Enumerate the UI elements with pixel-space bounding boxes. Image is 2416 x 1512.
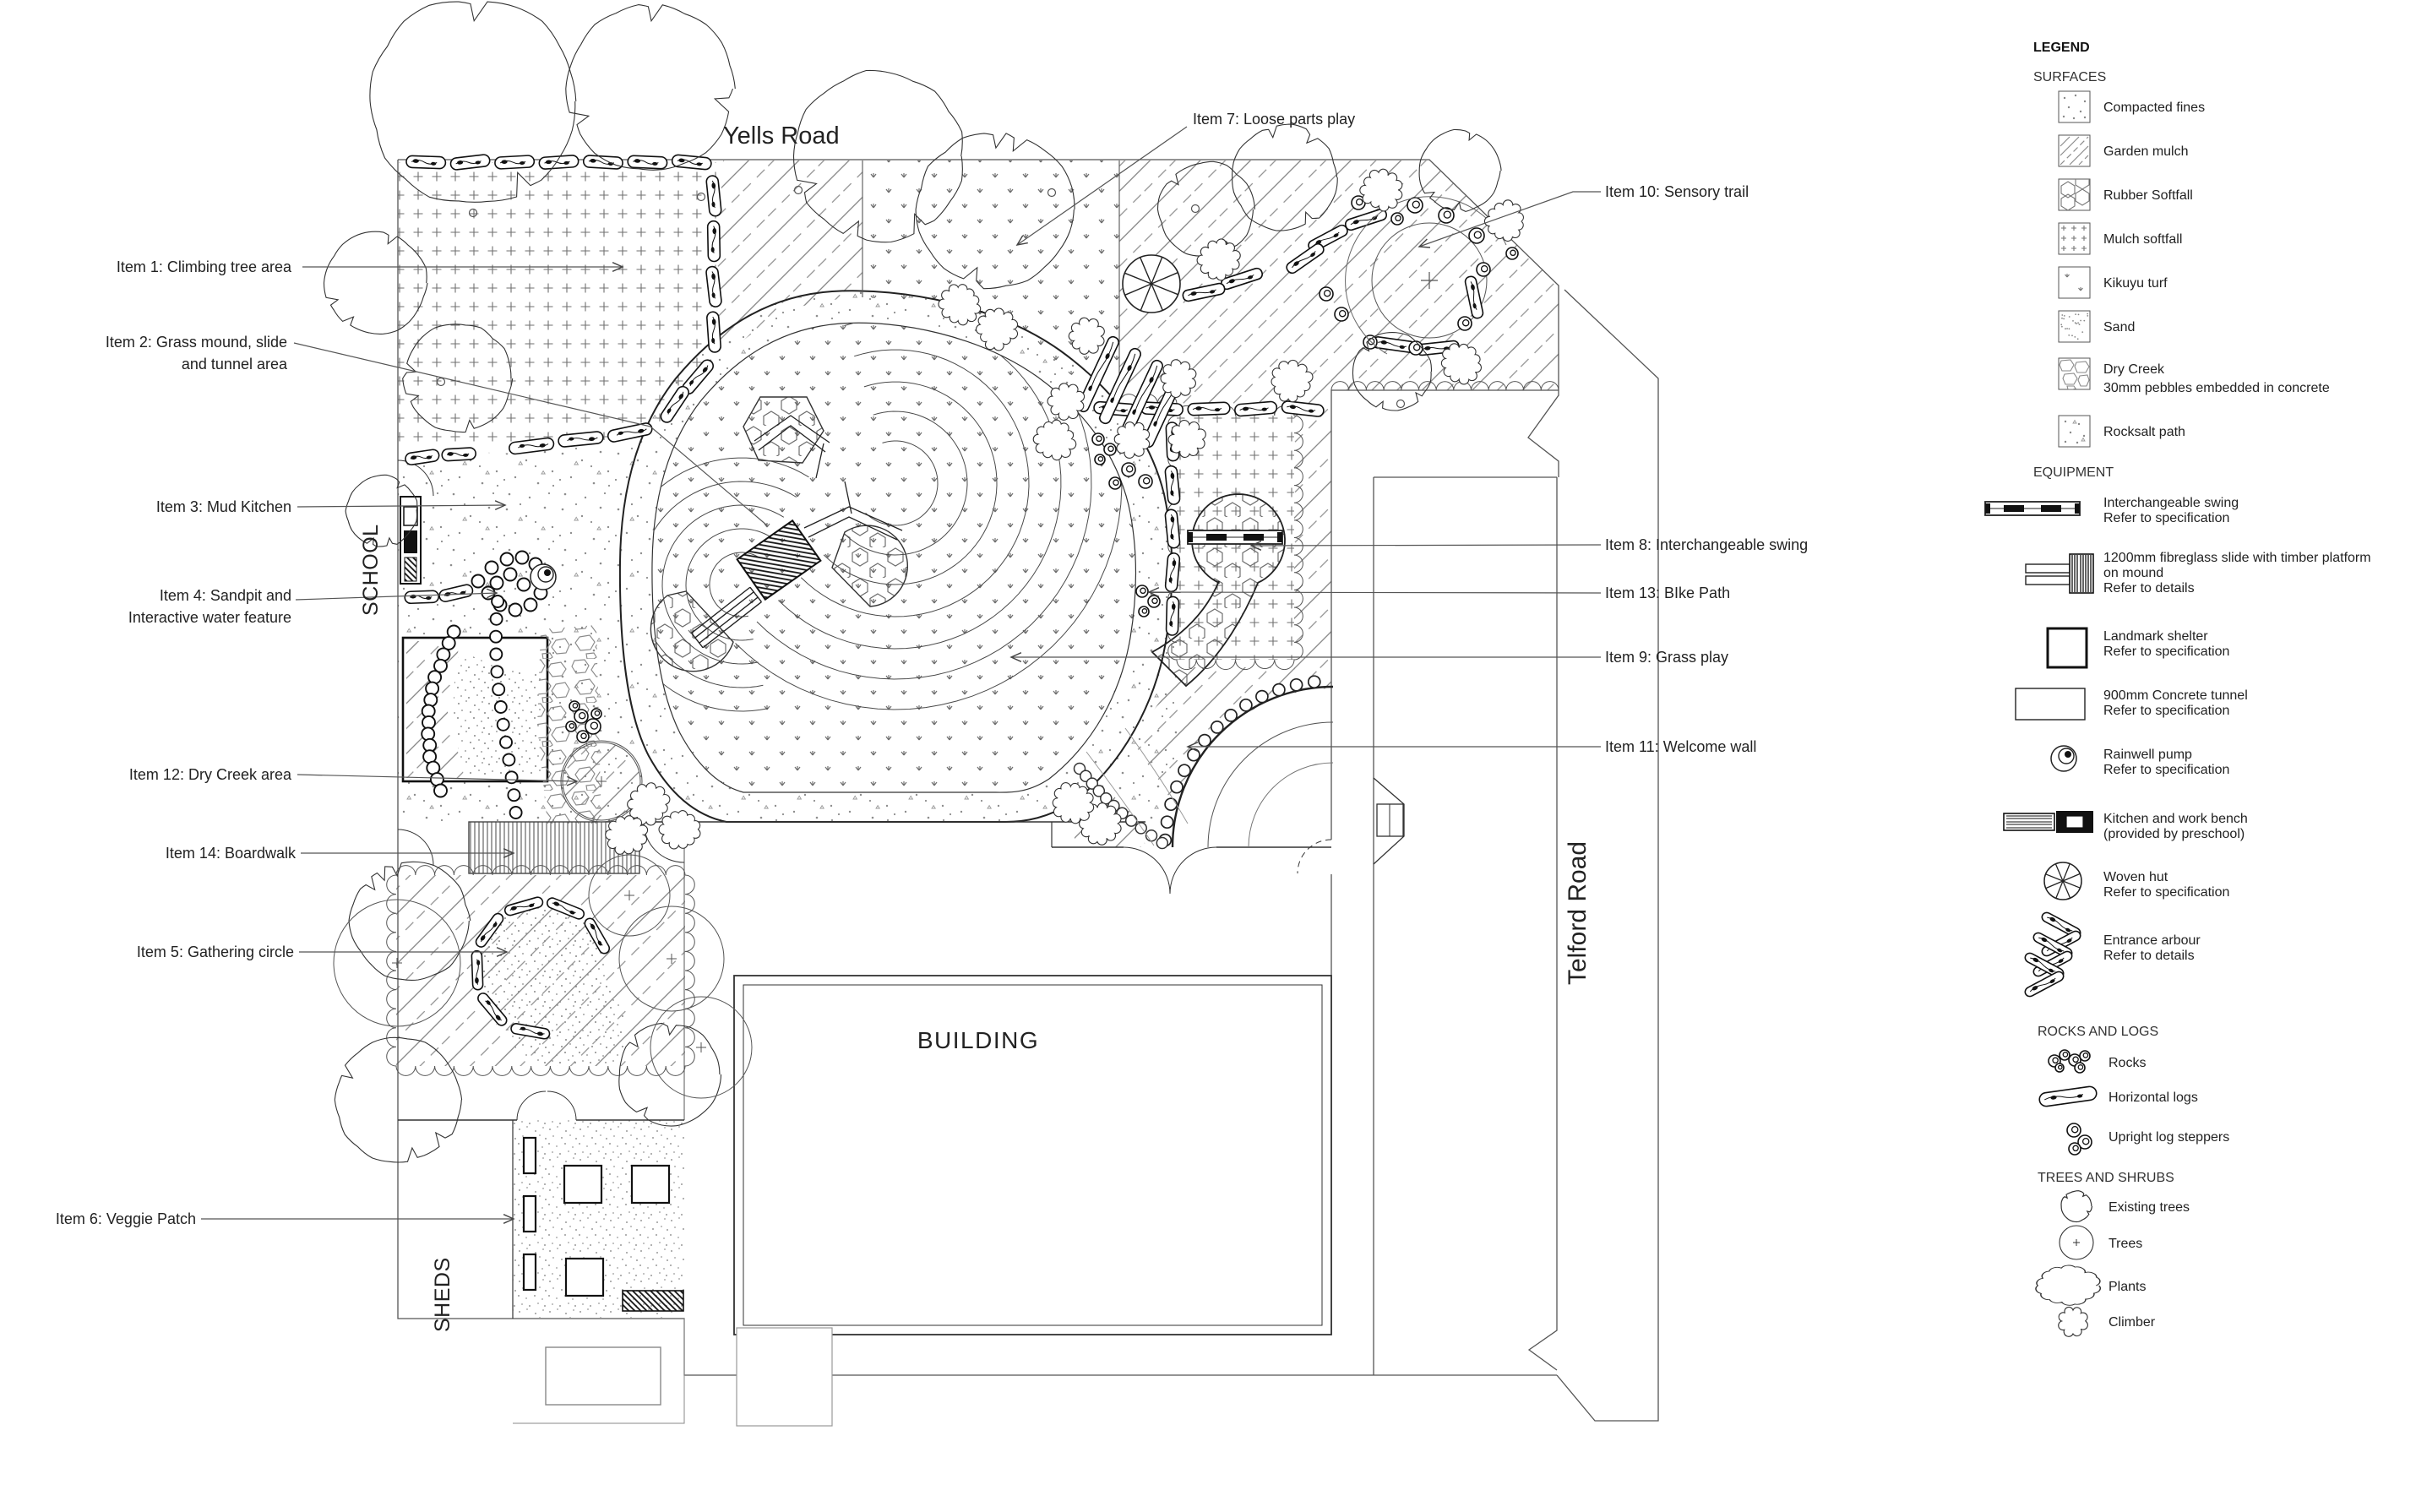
svg-text:Rocks: Rocks: [2109, 1056, 2146, 1070]
svg-text:SHEDS: SHEDS: [431, 1257, 454, 1332]
svg-text:Sand: Sand: [2103, 320, 2135, 334]
svg-text:Item 8: Interchangeable swing: Item 8: Interchangeable swing: [1605, 536, 1808, 553]
svg-text:TREES AND SHRUBS: TREES AND SHRUBS: [2038, 1171, 2174, 1185]
svg-text:ROCKS AND LOGS: ROCKS AND LOGS: [2038, 1025, 2158, 1039]
svg-text:Item 9: Grass play: Item 9: Grass play: [1605, 649, 1728, 666]
svg-text:Refer to specification: Refer to specification: [2103, 885, 2229, 900]
svg-text:Climber: Climber: [2109, 1315, 2156, 1330]
svg-text:Item 6: Veggie Patch: Item 6: Veggie Patch: [56, 1210, 196, 1227]
svg-text:Interactive water feature: Interactive water feature: [128, 609, 291, 626]
svg-text:Rubber Softfall: Rubber Softfall: [2103, 188, 2193, 203]
svg-text:SURFACES: SURFACES: [2033, 70, 2106, 84]
svg-text:Horizontal logs: Horizontal logs: [2109, 1090, 2198, 1105]
svg-text:1200mm fibreglass slide with t: 1200mm fibreglass slide with timber plat…: [2103, 551, 2371, 565]
svg-text:Item 2: Grass mound, slide: Item 2: Grass mound, slide: [106, 334, 287, 351]
svg-text:Item 13: BIke Path: Item 13: BIke Path: [1605, 585, 1730, 601]
svg-text:Item 5: Gathering circle: Item 5: Gathering circle: [137, 944, 294, 960]
svg-text:Item 4: Sandpit and: Item 4: Sandpit and: [160, 587, 291, 604]
svg-text:Item 10: Sensory trail: Item 10: Sensory trail: [1605, 183, 1749, 200]
svg-text:Item 3: Mud Kitchen: Item 3: Mud Kitchen: [156, 498, 291, 515]
svg-text:Refer to details: Refer to details: [2103, 949, 2195, 963]
svg-text:Rocksalt path: Rocksalt path: [2103, 425, 2185, 439]
svg-text:Entrance arbour: Entrance arbour: [2103, 933, 2201, 948]
svg-text:Refer to details: Refer to details: [2103, 581, 2195, 596]
svg-text:Existing trees: Existing trees: [2109, 1200, 2190, 1215]
svg-text:LEGEND: LEGEND: [2033, 41, 2090, 55]
svg-text:on mound: on mound: [2103, 566, 2163, 580]
svg-text:Upright log steppers: Upright log steppers: [2109, 1130, 2229, 1145]
svg-text:Refer to specification: Refer to specification: [2103, 511, 2229, 525]
svg-text:Trees: Trees: [2109, 1237, 2142, 1251]
svg-text:Item 7: Loose parts play: Item 7: Loose parts play: [1193, 111, 1355, 128]
svg-text:Item 14: Boardwalk: Item 14: Boardwalk: [166, 845, 297, 862]
svg-text:Garden mulch: Garden mulch: [2103, 144, 2189, 159]
svg-text:(provided by preschool): (provided by preschool): [2103, 827, 2245, 841]
svg-text:Refer to specification: Refer to specification: [2103, 645, 2229, 659]
svg-text:Refer to specification: Refer to specification: [2103, 763, 2229, 777]
svg-text:Mulch softfall: Mulch softfall: [2103, 232, 2182, 247]
svg-text:30mm pebbles embedded in concr: 30mm pebbles embedded in concrete: [2103, 381, 2330, 395]
svg-text:Rainwell pump: Rainwell pump: [2103, 748, 2192, 762]
svg-text:Kitchen and work bench: Kitchen and work bench: [2103, 812, 2248, 826]
svg-text:Woven hut: Woven hut: [2103, 870, 2168, 884]
svg-text:Yells Road: Yells Road: [723, 122, 840, 150]
svg-text:Refer to specification: Refer to specification: [2103, 704, 2229, 718]
svg-text:BUILDING: BUILDING: [917, 1027, 1039, 1053]
svg-text:Plants: Plants: [2109, 1280, 2146, 1294]
svg-text:and tunnel area: and tunnel area: [182, 356, 288, 373]
svg-text:Kikuyu turf: Kikuyu turf: [2103, 276, 2168, 291]
svg-text:Item 1: Climbing tree area: Item 1: Climbing tree area: [117, 258, 292, 275]
svg-text:Interchangeable swing: Interchangeable swing: [2103, 496, 2239, 510]
svg-text:Compacted fines: Compacted fines: [2103, 101, 2205, 115]
svg-text:Dry Creek: Dry Creek: [2103, 362, 2165, 377]
svg-text:Item 11: Welcome wall: Item 11: Welcome wall: [1605, 738, 1756, 755]
svg-text:EQUIPMENT: EQUIPMENT: [2033, 465, 2114, 480]
svg-text:900mm Concrete tunnel: 900mm Concrete tunnel: [2103, 688, 2248, 703]
svg-text:Telford Road: Telford Road: [1564, 841, 1592, 985]
svg-text:Landmark shelter: Landmark shelter: [2103, 629, 2208, 644]
svg-text:Item 12: Dry Creek area: Item 12: Dry Creek area: [129, 766, 292, 783]
svg-text:SCHOOL: SCHOOL: [359, 524, 383, 616]
